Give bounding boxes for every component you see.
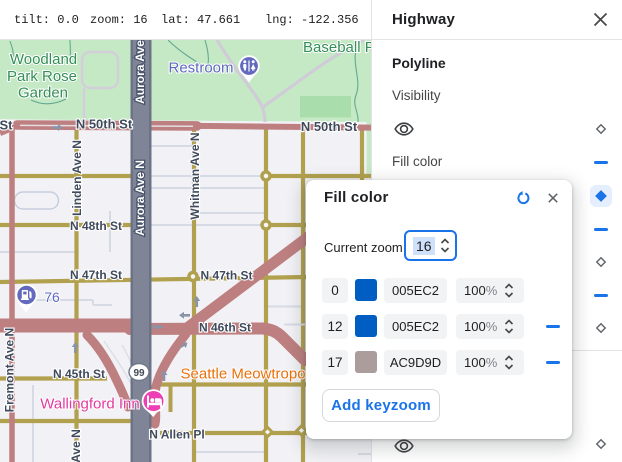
- svg-text:Fremont Ave N: Fremont Ave N: [3, 328, 17, 412]
- svg-text:N 48th St: N 48th St: [70, 219, 122, 233]
- svg-text:N 46th St: N 46th St: [199, 321, 251, 335]
- svg-text:Linden Ave N: Linden Ave N: [70, 140, 84, 216]
- svg-text:Park Rose: Park Rose: [7, 68, 77, 85]
- svg-text:Garden: Garden: [18, 85, 68, 102]
- svg-text:St: St: [0, 118, 13, 133]
- svg-text:Baseball Fie: Baseball Fie: [303, 40, 371, 56]
- svg-text:Aurora Ave N: Aurora Ave N: [133, 160, 147, 236]
- svg-text:99: 99: [133, 368, 145, 379]
- svg-text:N Allen Pl: N Allen Pl: [149, 428, 205, 442]
- svg-text:Aurora Ave: Aurora Ave: [133, 40, 147, 104]
- svg-text:N 50th St: N 50th St: [301, 119, 358, 134]
- svg-text:Ave N: Ave N: [69, 429, 83, 462]
- svg-text:76: 76: [44, 289, 60, 305]
- svg-text:Restroom: Restroom: [168, 60, 233, 77]
- svg-text:N 47th St: N 47th St: [70, 268, 122, 282]
- svg-text:Woodland: Woodland: [10, 51, 77, 68]
- svg-text:N 50th St: N 50th St: [76, 117, 133, 132]
- svg-text:Wallingford Inn: Wallingford Inn: [40, 396, 140, 413]
- svg-text:N 45th St: N 45th St: [53, 367, 105, 381]
- svg-text:N 47th St: N 47th St: [200, 269, 252, 283]
- svg-text:Whitman Ave N: Whitman Ave N: [188, 132, 202, 219]
